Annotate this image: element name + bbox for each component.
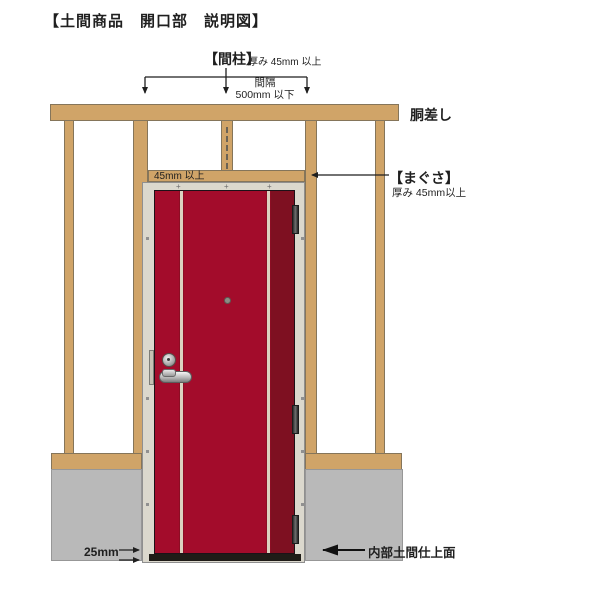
lintel-spec-label: 厚み 45mm以上 [392, 185, 466, 200]
lock-cylinder [162, 353, 176, 367]
door-hinge-bottom [292, 515, 299, 544]
sill-rail-right [305, 453, 402, 470]
stud-nail-marks [226, 127, 228, 169]
diagram-canvas: 【土間商品 開口部 説明図】 45mm 以上 + + + [0, 0, 600, 600]
bottom-gap-label: 25mm [84, 545, 119, 559]
post-right-inner [305, 120, 317, 454]
frame-fastener-dot [146, 450, 149, 453]
girder-label: 胴差し [410, 105, 452, 125]
door-hinge-side-shading [271, 191, 294, 553]
post-right-outer [375, 120, 385, 454]
door-hinge-middle [292, 405, 299, 434]
girder-beam [50, 104, 399, 121]
center-stud [221, 120, 233, 171]
stud-spacing-label: 間隔 500mm 以下 [230, 78, 300, 101]
door-frame: + + + [142, 182, 305, 563]
frame-fastener-dot [146, 237, 149, 240]
stud-spacing-value: 500mm 以下 [230, 90, 300, 102]
door-lever-handle [159, 371, 192, 383]
diagram-title: 【土間商品 開口部 説明図】 [44, 10, 268, 31]
stud-spacing-word: 間隔 [230, 78, 300, 90]
door-panel [154, 190, 295, 554]
door-stripe-right [266, 191, 271, 553]
door-peephole [224, 297, 231, 304]
sill-rail-left [51, 453, 142, 470]
frame-fastener-dot [146, 503, 149, 506]
lintel-beam: 45mm 以上 [148, 170, 305, 182]
frame-fastener-dot [301, 450, 304, 453]
door-threshold [149, 554, 301, 561]
frame-fastener-dot [301, 397, 304, 400]
interior-floor-label: 内部土間仕上面 [368, 542, 456, 561]
stud-thickness-label: 厚み 45mm 以上 [248, 53, 321, 68]
frame-fastener-dot [301, 503, 304, 506]
frame-fastener-dot [301, 237, 304, 240]
lintel-thickness-label: 45mm 以上 [154, 171, 205, 182]
post-left-outer [64, 120, 74, 454]
door-hinge-top [292, 205, 299, 234]
frame-fastener-dot [146, 397, 149, 400]
